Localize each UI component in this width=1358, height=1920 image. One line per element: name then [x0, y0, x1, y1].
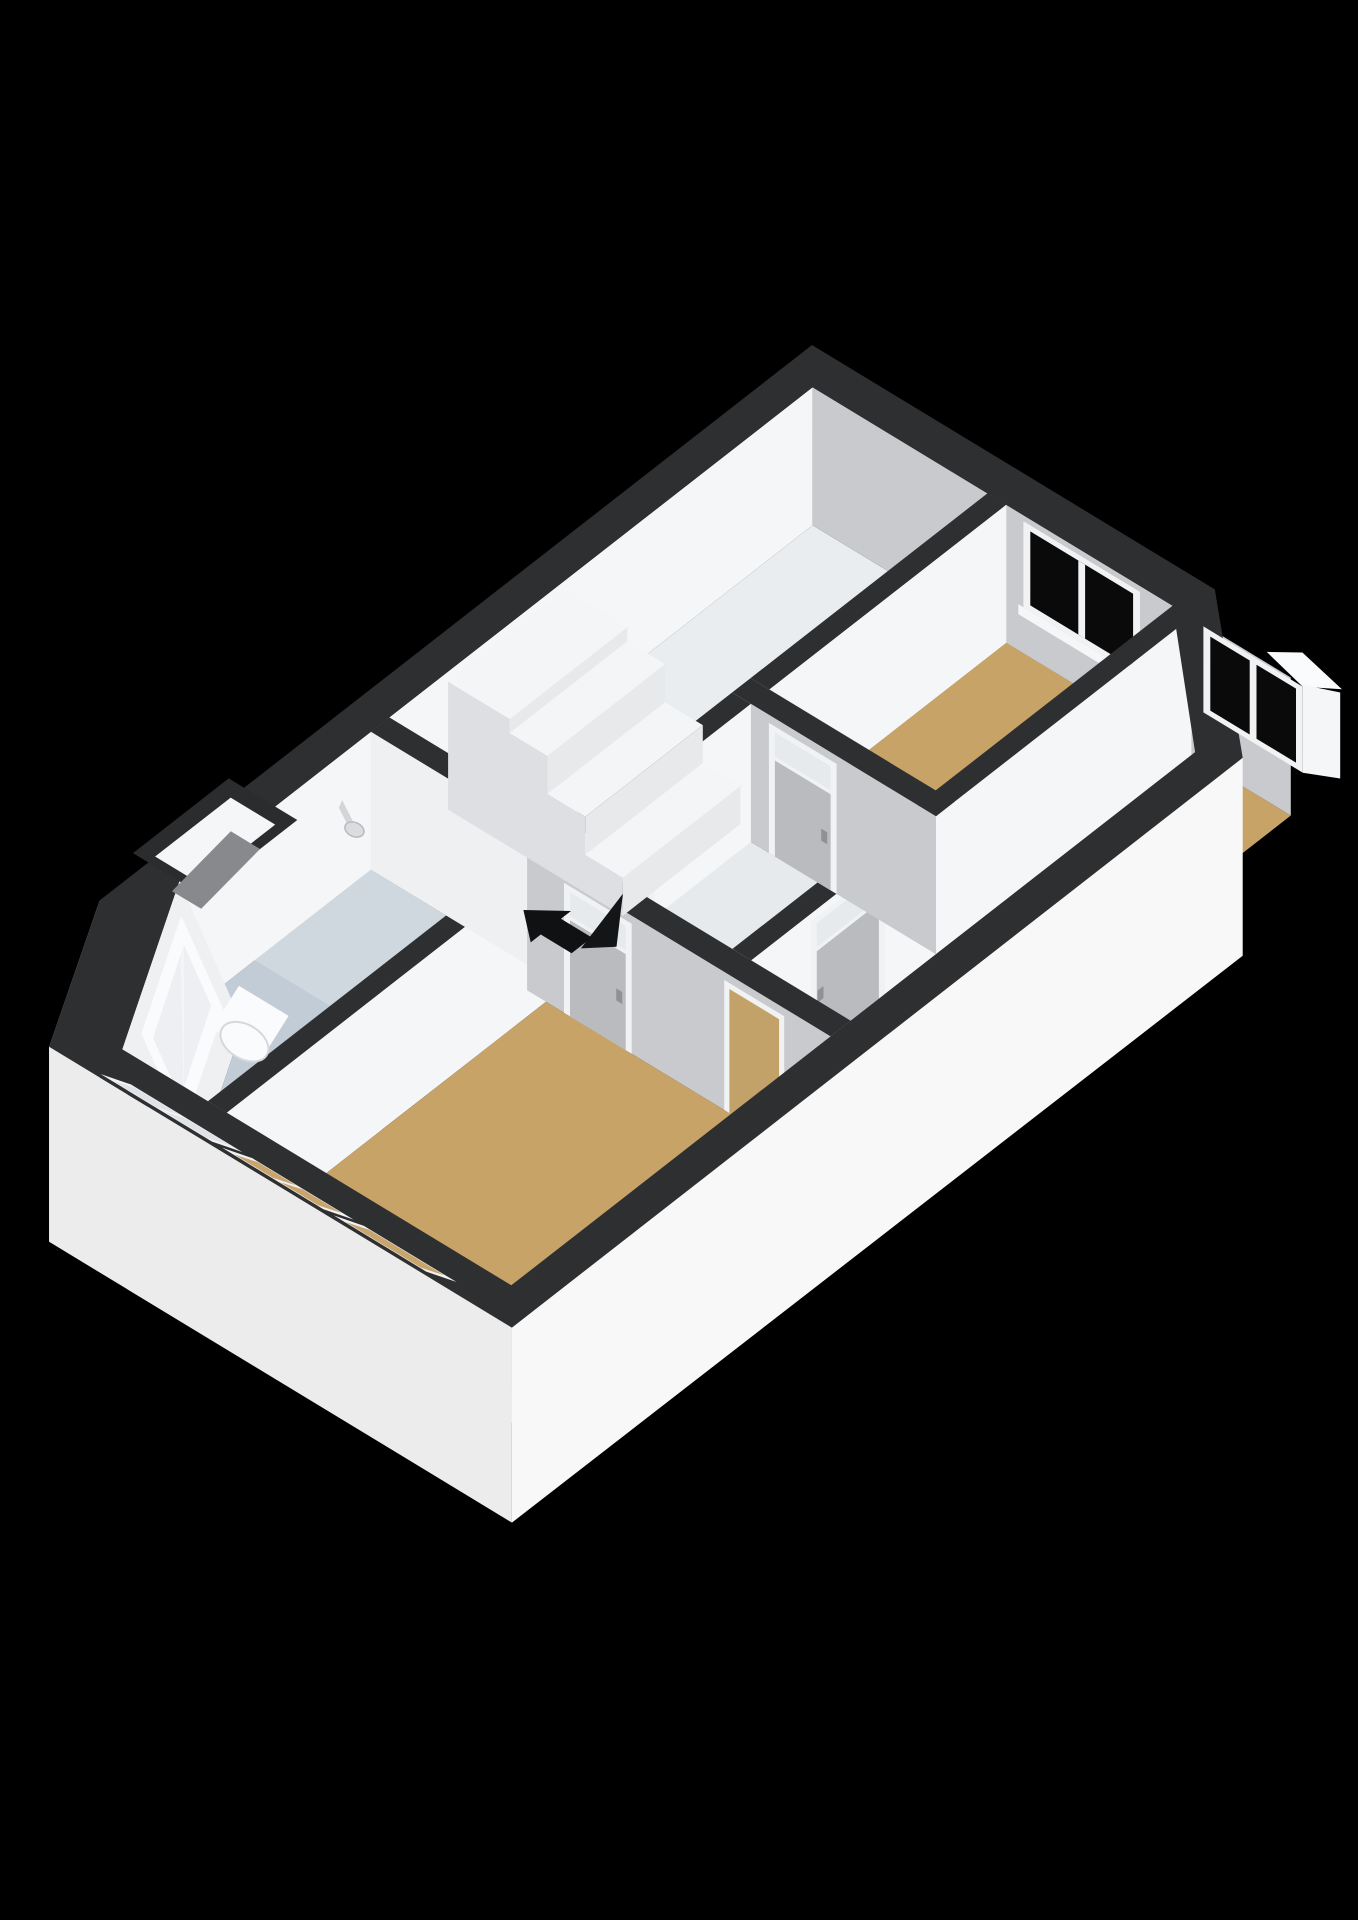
dormer-box-side	[1303, 685, 1340, 779]
window-top-mullion	[1078, 561, 1085, 639]
floorplan-viewport	[0, 0, 1358, 1920]
floorplan-3d-scene	[0, 0, 1358, 1920]
